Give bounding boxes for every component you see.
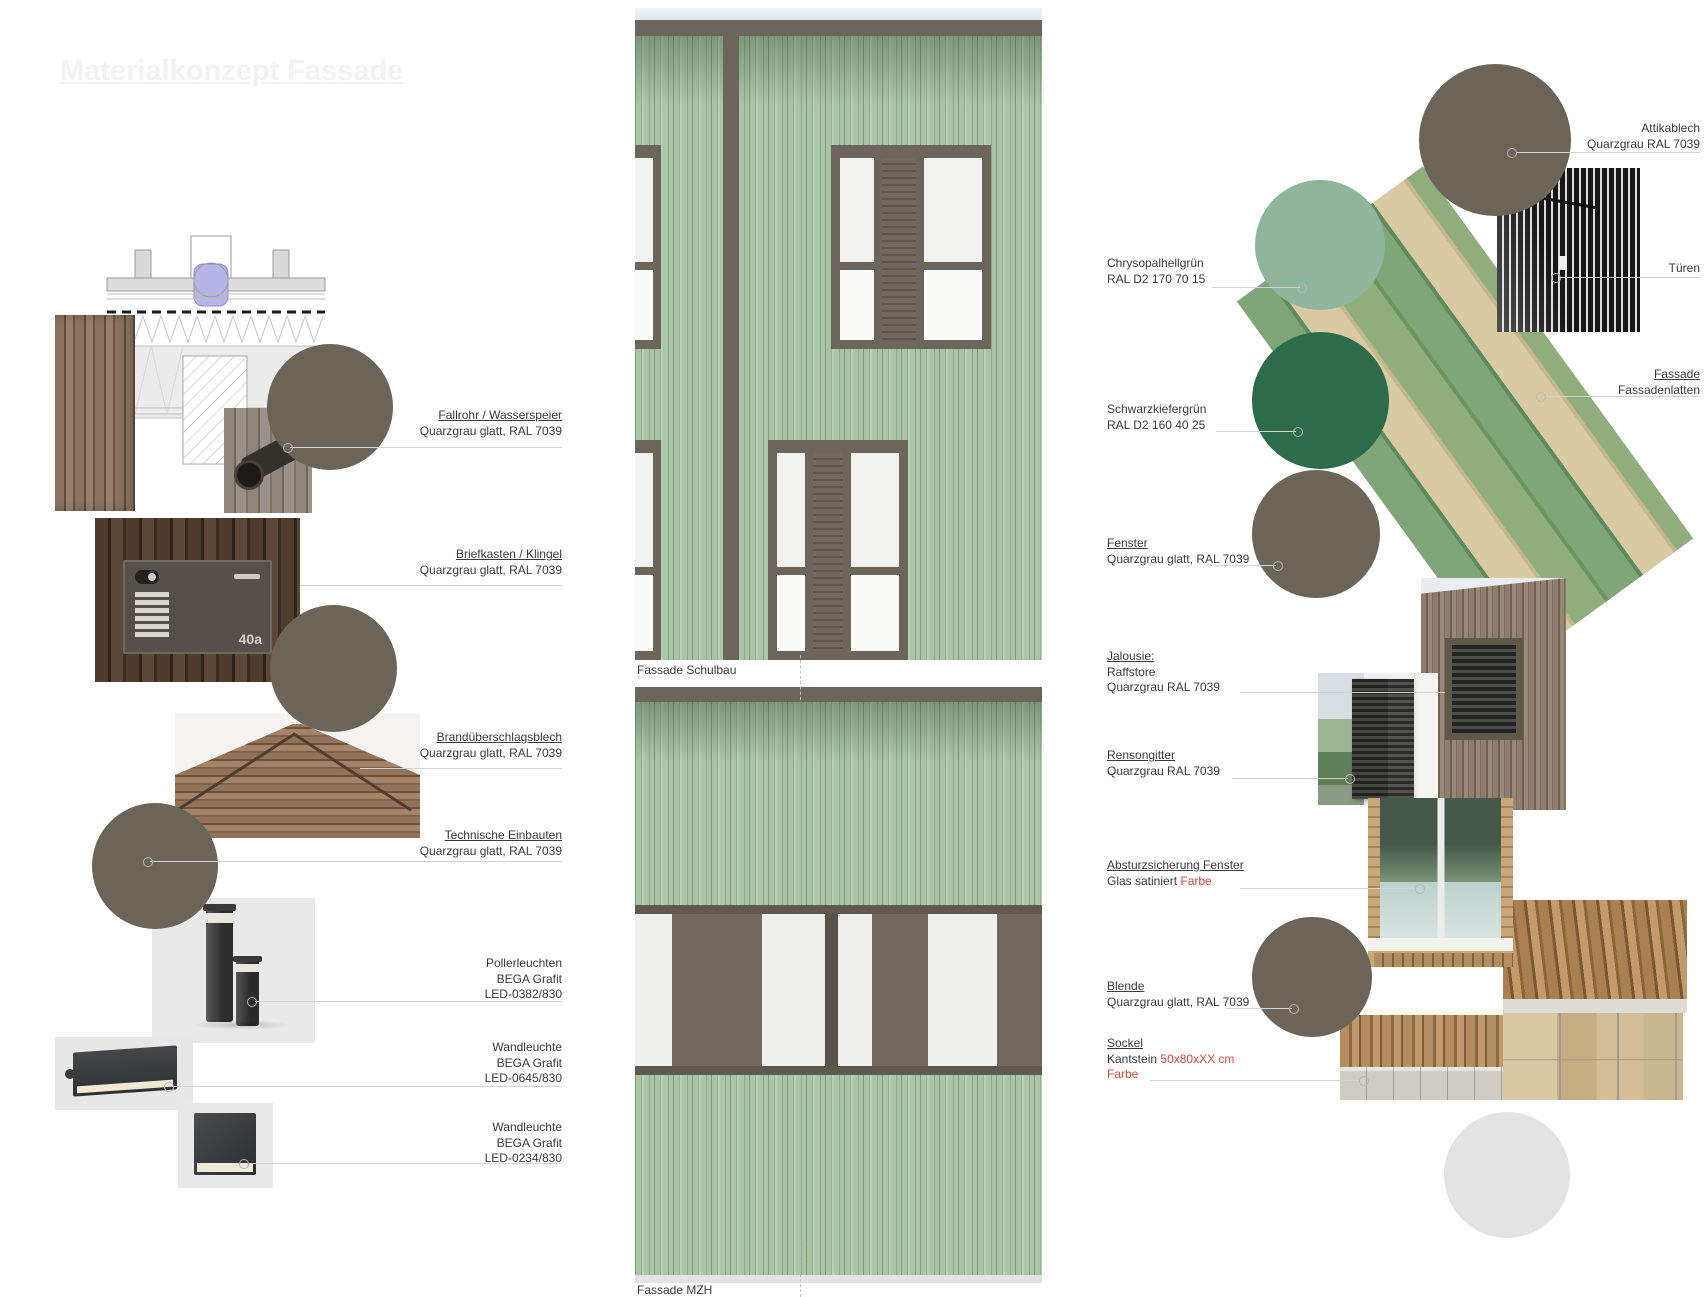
photo-sockel bbox=[1340, 1015, 1503, 1100]
band-panel bbox=[672, 914, 762, 1066]
door-unit-lower bbox=[768, 440, 908, 660]
leader-ring bbox=[1507, 148, 1517, 158]
label-sub: Quarzgrau glatt, RAL 7039 bbox=[1107, 995, 1249, 1011]
door-leaf bbox=[882, 158, 916, 340]
label-rensongitter: Rensongitter Quarzgrau RAL 7039 bbox=[1107, 748, 1220, 779]
leader-ring bbox=[239, 1159, 249, 1169]
slat-strip bbox=[1374, 953, 1513, 967]
leader-line bbox=[1516, 152, 1700, 153]
label-attikablech: Attikablech Quarzgrau RAL 7039 bbox=[1587, 121, 1700, 152]
window-column bbox=[840, 158, 874, 340]
facade-post bbox=[723, 36, 739, 660]
material-board: Materialkonzept Fassade bbox=[0, 0, 1707, 1297]
label-sub: LED-0382/830 bbox=[485, 987, 562, 1003]
leader-ring bbox=[247, 997, 257, 1007]
photo-fassadenlatten-detail bbox=[1503, 900, 1687, 1013]
label-sub: Raffstore bbox=[1107, 665, 1220, 681]
label-title: Attikablech bbox=[1587, 121, 1700, 137]
label-title: Technische Einbauten bbox=[445, 828, 562, 842]
leader-line bbox=[290, 447, 562, 448]
label-sub: LED-0234/830 bbox=[485, 1151, 562, 1167]
siding-shadow bbox=[635, 36, 1042, 106]
label-wandleuchte-1: Wandleuchte BEGA Grafit LED-0645/830 bbox=[485, 1040, 562, 1087]
mail-slot bbox=[234, 574, 260, 579]
label-sub-red: Farbe bbox=[1180, 874, 1211, 888]
leader-line bbox=[1232, 778, 1348, 779]
window-column bbox=[924, 158, 982, 340]
window-column bbox=[635, 158, 653, 340]
glass-pane bbox=[635, 158, 653, 262]
spandrel-panel bbox=[851, 575, 899, 651]
leader-ring bbox=[1293, 427, 1303, 437]
caption-mzh: Fassade MZH bbox=[637, 1283, 712, 1297]
caption-schulbau: Fassade Schulbau bbox=[637, 663, 736, 677]
label-sub: Fassadenlatten bbox=[1618, 383, 1700, 399]
label-brandueberschlagsblech: Brandüberschlagsblech Quarzgrau glatt, R… bbox=[420, 730, 562, 761]
label-briefkasten: Briefkasten / Klingel Quarzgrau glatt, R… bbox=[420, 547, 562, 578]
leader-ring bbox=[1289, 1004, 1299, 1014]
renson-panel-1 bbox=[1352, 679, 1388, 799]
spandrel-panel bbox=[635, 270, 653, 340]
swatch-schwarzkiefergruen bbox=[1252, 332, 1389, 469]
wood-post-right bbox=[1501, 798, 1513, 950]
label-title: Fassade bbox=[1654, 367, 1700, 381]
band-window bbox=[838, 914, 872, 1066]
band-window bbox=[762, 914, 825, 1066]
siding-shadow bbox=[635, 702, 1042, 762]
label-tueren: Türen bbox=[1669, 261, 1700, 277]
label-sub: Quarzgrau glatt, RAL 7039 bbox=[420, 844, 562, 860]
bollard-light-band bbox=[236, 964, 259, 972]
label-title: Blende bbox=[1107, 979, 1144, 993]
leader-line bbox=[300, 585, 562, 586]
label-sub: BEGA Grafit bbox=[485, 1056, 562, 1072]
glass-pane bbox=[851, 453, 899, 567]
swatch-quarzgrau-fenster bbox=[1252, 470, 1380, 598]
leader-line bbox=[1240, 888, 1418, 889]
label-title: Chrysopalhellgrün bbox=[1107, 256, 1205, 272]
bollard-shadow bbox=[192, 1020, 292, 1030]
leader-ring bbox=[1359, 1076, 1369, 1086]
bollard-tall bbox=[206, 904, 233, 1022]
band-window bbox=[635, 914, 672, 1066]
leader-line bbox=[1240, 692, 1445, 693]
door-handle bbox=[1559, 256, 1567, 270]
spandrel-panel bbox=[635, 575, 653, 651]
wall-lamp-body bbox=[73, 1045, 177, 1096]
leader-ring bbox=[283, 443, 293, 453]
leader-ring bbox=[164, 1082, 174, 1092]
leader-ring bbox=[1273, 561, 1283, 571]
band-panel bbox=[872, 914, 928, 1066]
ground-strip bbox=[635, 1275, 1042, 1283]
label-technische-einbauten: Technische Einbauten Quarzgrau glatt, RA… bbox=[420, 828, 562, 859]
label-chrysopalhellgruen: Chrysopalhellgrün RAL D2 170 70 15 bbox=[1107, 256, 1205, 287]
window-column bbox=[851, 453, 899, 651]
label-title: Absturzsicherung Fenster bbox=[1107, 858, 1244, 872]
swatch-sockel-hell bbox=[1444, 1112, 1570, 1238]
leader-line bbox=[1212, 287, 1300, 288]
label-fallrohr: Fallrohr / Wasserspeier Quarzgrau glatt,… bbox=[420, 408, 562, 439]
bollard-cap bbox=[233, 956, 262, 962]
leader-line bbox=[360, 768, 562, 769]
mailbox-number: 40a bbox=[239, 631, 262, 647]
page-title: Materialkonzept Fassade bbox=[60, 55, 403, 88]
label-wandleuchte-2: Wandleuchte BEGA Grafit LED-0234/830 bbox=[485, 1120, 562, 1167]
band-mullion bbox=[825, 914, 838, 1066]
lamp-knob bbox=[65, 1069, 75, 1079]
sky-corner bbox=[1421, 578, 1566, 604]
leader-ring bbox=[1297, 283, 1307, 293]
label-jalousie: Jalousie: Raffstore Quarzgrau RAL 7039 bbox=[1107, 649, 1220, 696]
label-title: Pollerleuchten bbox=[485, 956, 562, 972]
label-sub: Quarzgrau glatt, RAL 7039 bbox=[420, 746, 562, 762]
label-sub: Quarzgrau glatt, RAL 7039 bbox=[1107, 552, 1249, 568]
guide-dash-lower bbox=[800, 1240, 801, 1297]
sockel-wood bbox=[1340, 1015, 1503, 1067]
photo-kantstein bbox=[1503, 1013, 1683, 1100]
label-sub: LED-0645/830 bbox=[485, 1071, 562, 1087]
label-title: Briefkasten / Klingel bbox=[456, 547, 562, 561]
label-sub: Quarzgrau RAL 7039 bbox=[1107, 764, 1220, 780]
photo-roof-gable bbox=[175, 713, 420, 838]
doorbell-buttons bbox=[135, 592, 169, 640]
window-column bbox=[777, 453, 805, 651]
lamp-diffuser bbox=[77, 1080, 173, 1094]
leader-ring bbox=[1551, 273, 1561, 283]
leader-line bbox=[150, 861, 562, 862]
label-sub: BEGA Grafit bbox=[485, 1136, 562, 1152]
wood-post-left bbox=[1368, 798, 1380, 950]
spout-opening bbox=[234, 460, 264, 490]
spandrel-panel bbox=[840, 270, 874, 340]
label-title: Türen bbox=[1669, 261, 1700, 277]
label-title: Rensongitter bbox=[1107, 748, 1175, 762]
door-leaf bbox=[813, 453, 843, 651]
label-sub: Quarzgrau RAL 7039 bbox=[1587, 137, 1700, 153]
spandrel-panel bbox=[777, 575, 805, 651]
gable-sky bbox=[175, 713, 420, 775]
green-siding bbox=[635, 1075, 1042, 1275]
photo-wandleuchte-2 bbox=[178, 1103, 273, 1188]
label-sub: RAL D2 170 70 15 bbox=[1107, 272, 1205, 288]
label-sub: Kantstein bbox=[1107, 1052, 1157, 1066]
leader-line bbox=[1560, 277, 1700, 278]
swatch-quarzgrau-attikablech bbox=[1419, 64, 1571, 216]
swatch-quarzgrau-briefkasten bbox=[270, 605, 397, 732]
elevation-schulbau bbox=[635, 8, 1042, 660]
photo-wood-facade-strip bbox=[55, 315, 135, 511]
label-fenster: Fenster Quarzgrau glatt, RAL 7039 bbox=[1107, 536, 1249, 567]
photo-holzwuerfel-raffstore bbox=[1421, 578, 1566, 810]
glass-pane bbox=[635, 453, 653, 567]
swatch-quarzgrau-technische bbox=[92, 803, 218, 929]
label-sub-red: 50x80xXX cm bbox=[1160, 1052, 1234, 1066]
door-unit-upper bbox=[831, 145, 991, 349]
doorbell-camera bbox=[135, 570, 159, 584]
label-title: Jalousie: bbox=[1107, 649, 1154, 663]
label-title: Brandüberschlagsblech bbox=[437, 730, 562, 744]
glass-pane bbox=[777, 453, 805, 567]
band-window bbox=[928, 914, 997, 1066]
label-title: Wandleuchte bbox=[485, 1120, 562, 1136]
window-partial-lower bbox=[635, 440, 661, 660]
label-sockel: Sockel Kantstein 50x80xXX cm Farbe bbox=[1107, 1036, 1234, 1083]
label-sub: RAL D2 160 40 25 bbox=[1107, 418, 1206, 434]
bollard-cap bbox=[203, 904, 236, 911]
label-title: Fallrohr / Wasserspeier bbox=[438, 408, 562, 422]
mailbox-panel: 40a bbox=[123, 560, 272, 654]
window-mullion bbox=[1437, 798, 1444, 938]
base-strip bbox=[1503, 999, 1687, 1013]
leader-ring bbox=[143, 857, 153, 867]
leader-line bbox=[1216, 431, 1296, 432]
renson-panel-2 bbox=[1388, 679, 1414, 799]
label-blende: Blende Quarzgrau glatt, RAL 7039 bbox=[1107, 979, 1249, 1010]
sky-strip bbox=[635, 8, 1042, 20]
swatch-chrysopalhellgruen bbox=[1255, 180, 1385, 310]
label-sub: Quarzgrau glatt, RAL 7039 bbox=[420, 563, 562, 579]
label-sub: Quarzgrau RAL 7039 bbox=[1107, 680, 1220, 696]
label-sub-red: Farbe bbox=[1107, 1067, 1138, 1081]
window-sill bbox=[1368, 938, 1513, 951]
guide-dash-upper bbox=[800, 655, 801, 700]
label-sub: Quarzgrau glatt, RAL 7039 bbox=[420, 424, 562, 440]
label-sub: Glas satiniert bbox=[1107, 874, 1177, 888]
photo-absturzsicherung bbox=[1368, 798, 1513, 967]
attika-band bbox=[635, 20, 1042, 36]
glass-pane bbox=[840, 158, 874, 262]
glass-pane bbox=[924, 158, 982, 262]
label-fassade: Fassade Fassadenlatten bbox=[1618, 367, 1700, 398]
bollard-light-band bbox=[206, 913, 233, 923]
label-title: Fenster bbox=[1107, 536, 1148, 550]
bollard-short bbox=[236, 956, 259, 1026]
attika-band bbox=[635, 687, 1042, 702]
spandrel-panel bbox=[924, 270, 982, 340]
label-pollerleuchten: Pollerleuchten BEGA Grafit LED-0382/830 bbox=[485, 956, 562, 1003]
window-band bbox=[635, 905, 1042, 1075]
leader-ring bbox=[1415, 884, 1425, 894]
leader-ring bbox=[1536, 392, 1546, 402]
label-sub: BEGA Grafit bbox=[485, 972, 562, 988]
photo-briefkasten: 40a bbox=[95, 518, 300, 682]
swatch-quarzgrau-blende bbox=[1252, 917, 1372, 1037]
raffstore-window bbox=[1445, 638, 1523, 740]
label-schwarzkiefergruen: Schwarzkiefergrün RAL D2 160 40 25 bbox=[1107, 402, 1206, 433]
leader-ring bbox=[1345, 774, 1355, 784]
window-column bbox=[635, 453, 653, 651]
label-title: Schwarzkiefergrün bbox=[1107, 402, 1206, 418]
photo-wandleuchte-1 bbox=[55, 1037, 193, 1110]
label-title: Sockel bbox=[1107, 1036, 1143, 1050]
label-title: Wandleuchte bbox=[485, 1040, 562, 1056]
band-panel bbox=[997, 914, 1042, 1066]
label-absturzsicherung: Absturzsicherung Fenster Glas satiniert … bbox=[1107, 858, 1244, 889]
elevation-mzh bbox=[635, 687, 1042, 1283]
camera-lens bbox=[148, 573, 156, 581]
window-partial-upper bbox=[635, 145, 661, 349]
